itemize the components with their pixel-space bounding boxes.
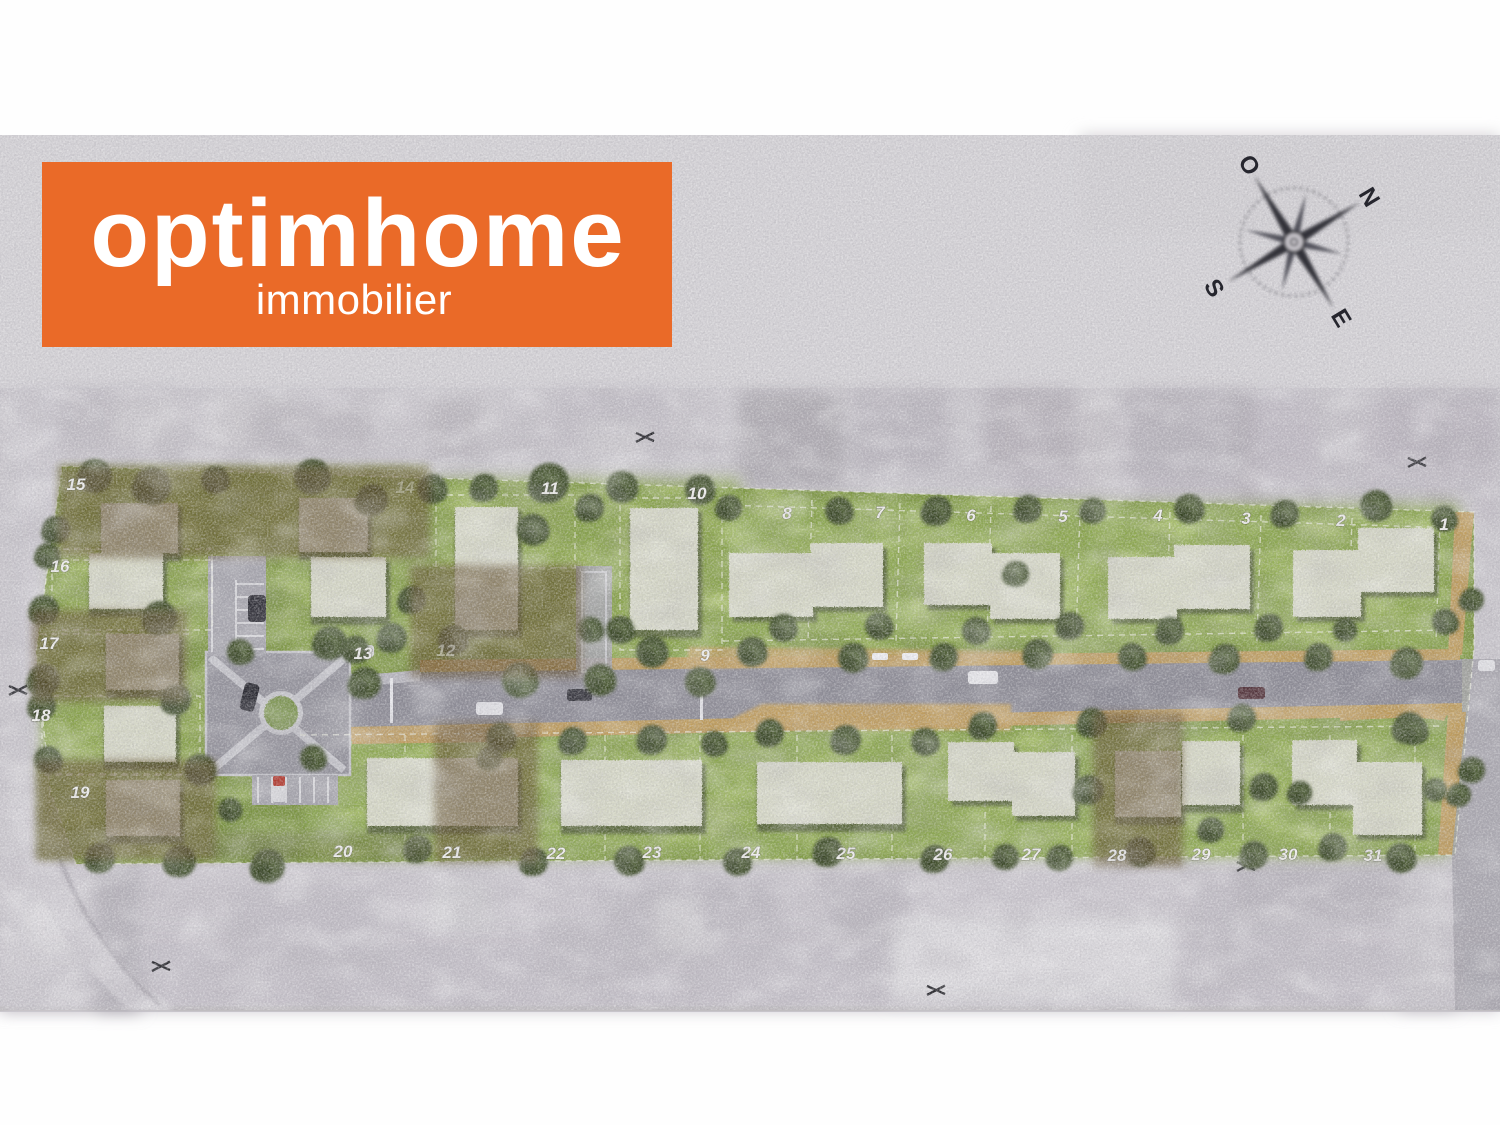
svg-text:optimhome: optimhome xyxy=(90,180,625,287)
svg-text:immobilier: immobilier xyxy=(256,276,452,323)
